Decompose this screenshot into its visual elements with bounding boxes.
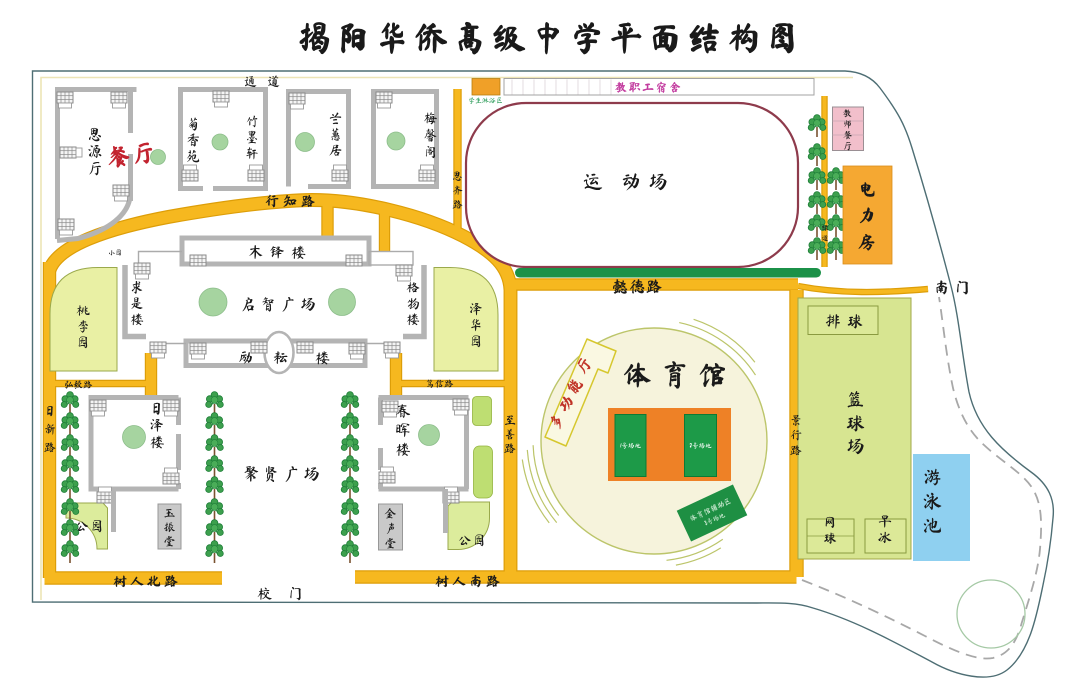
svg-text:树人南路: 树人南路 <box>435 574 503 588</box>
svg-text:至: 至 <box>504 414 516 426</box>
svg-text:绿: 绿 <box>822 225 830 232</box>
svg-text:楼: 楼 <box>150 434 165 449</box>
svg-text:木铎楼: 木铎楼 <box>248 245 313 260</box>
svg-text:泳: 泳 <box>923 492 942 511</box>
svg-text:学生淋浴区: 学生淋浴区 <box>468 97 503 105</box>
svg-text:振: 振 <box>163 521 175 533</box>
svg-text:日: 日 <box>44 405 56 417</box>
svg-text:堂: 堂 <box>163 535 175 547</box>
svg-text:桃: 桃 <box>76 303 90 317</box>
svg-text:懿德路: 懿德路 <box>612 278 663 294</box>
svg-text:路: 路 <box>452 200 463 210</box>
svg-text:齐: 齐 <box>452 185 463 196</box>
svg-text:力: 力 <box>858 207 876 224</box>
svg-text:景: 景 <box>790 413 802 426</box>
svg-text:房: 房 <box>858 233 876 251</box>
svg-text:堂: 堂 <box>384 537 396 549</box>
svg-text:馨: 馨 <box>424 128 438 142</box>
svg-text:场: 场 <box>846 437 865 456</box>
svg-text:声: 声 <box>384 521 396 534</box>
svg-text:旱: 旱 <box>878 515 892 529</box>
svg-text:网: 网 <box>823 516 836 529</box>
svg-text:启智广场: 启智广场 <box>240 296 320 312</box>
svg-text:行: 行 <box>790 429 802 441</box>
svg-text:池: 池 <box>923 516 942 535</box>
svg-text:新: 新 <box>44 423 56 435</box>
svg-text:球: 球 <box>846 414 865 433</box>
svg-text:物: 物 <box>406 296 420 310</box>
svg-text:弘毅路: 弘毅路 <box>64 380 93 390</box>
svg-text:电: 电 <box>858 180 876 197</box>
svg-text:春: 春 <box>395 403 410 418</box>
svg-text:晖: 晖 <box>395 422 410 437</box>
svg-text:厅: 厅 <box>843 141 853 151</box>
svg-text:路: 路 <box>44 441 56 453</box>
svg-text:泽: 泽 <box>150 418 165 433</box>
svg-text:耘: 耘 <box>273 350 288 365</box>
svg-text:笃信路: 笃信路 <box>425 379 454 389</box>
svg-text:兰: 兰 <box>329 111 343 125</box>
svg-text:运: 运 <box>583 172 603 192</box>
svg-text:菊: 菊 <box>186 117 200 131</box>
svg-text:楼: 楼 <box>315 350 330 365</box>
svg-text:墨: 墨 <box>245 130 259 144</box>
svg-text:竹: 竹 <box>245 114 259 128</box>
svg-text:格: 格 <box>406 280 420 294</box>
svg-text:思: 思 <box>87 127 102 142</box>
svg-text:2号场地: 2号场地 <box>690 442 712 449</box>
svg-text:树人北路: 树人北路 <box>113 574 181 588</box>
svg-text:排球: 排球 <box>825 313 869 329</box>
svg-text:行知路: 行知路 <box>265 194 319 208</box>
svg-text:泽: 泽 <box>469 302 483 316</box>
svg-text:公园: 公园 <box>75 519 105 533</box>
svg-text:动: 动 <box>621 172 641 192</box>
svg-text:玉: 玉 <box>163 507 175 519</box>
svg-text:居: 居 <box>329 143 343 157</box>
svg-text:揭阳华侨高级中学平面结构图: 揭阳华侨高级中学平面结构图 <box>298 22 805 55</box>
svg-text:校门: 校门 <box>256 586 319 601</box>
svg-text:蕙: 蕙 <box>329 127 343 142</box>
svg-text:善: 善 <box>504 428 516 440</box>
svg-text:教职工宿舍: 教职工宿舍 <box>615 82 683 94</box>
svg-text:游: 游 <box>923 468 942 487</box>
svg-text:公园: 公园 <box>458 533 487 547</box>
svg-text:通道: 通道 <box>244 75 290 88</box>
svg-text:李: 李 <box>76 319 90 333</box>
svg-text:厅: 厅 <box>87 161 102 176</box>
svg-text:路: 路 <box>504 442 516 454</box>
svg-text:体育馆: 体育馆 <box>623 361 736 389</box>
svg-text:思: 思 <box>452 171 463 182</box>
svg-text:场: 场 <box>648 172 668 192</box>
svg-text:冰: 冰 <box>878 531 892 545</box>
svg-text:苑: 苑 <box>186 149 200 163</box>
svg-text:是: 是 <box>130 296 144 310</box>
svg-text:1号场地: 1号场地 <box>620 442 641 449</box>
svg-text:球: 球 <box>823 532 836 545</box>
svg-text:阁: 阁 <box>424 145 438 159</box>
svg-text:华: 华 <box>469 318 483 332</box>
svg-text:道: 道 <box>822 234 829 242</box>
svg-text:梅: 梅 <box>424 111 438 125</box>
svg-text:求: 求 <box>130 280 144 294</box>
svg-text:南门: 南门 <box>934 279 975 295</box>
svg-text:励: 励 <box>238 350 253 365</box>
svg-text:路: 路 <box>790 444 802 456</box>
svg-text:楼: 楼 <box>406 312 420 326</box>
svg-text:源: 源 <box>87 144 102 159</box>
svg-text:餐: 餐 <box>843 130 853 140</box>
svg-text:金: 金 <box>384 507 396 519</box>
svg-text:楼: 楼 <box>130 312 144 326</box>
svg-text:教: 教 <box>843 108 853 118</box>
svg-text:轩: 轩 <box>245 146 259 160</box>
svg-text:聚贤广场: 聚贤广场 <box>243 465 323 483</box>
svg-text:楼: 楼 <box>395 441 410 456</box>
svg-text:师: 师 <box>843 118 853 129</box>
svg-text:日: 日 <box>150 401 165 416</box>
svg-text:篮: 篮 <box>846 390 865 409</box>
svg-text:小园: 小园 <box>108 249 122 256</box>
svg-text:香: 香 <box>186 133 200 147</box>
svg-text:园: 园 <box>469 334 483 348</box>
svg-text:园: 园 <box>76 335 90 349</box>
